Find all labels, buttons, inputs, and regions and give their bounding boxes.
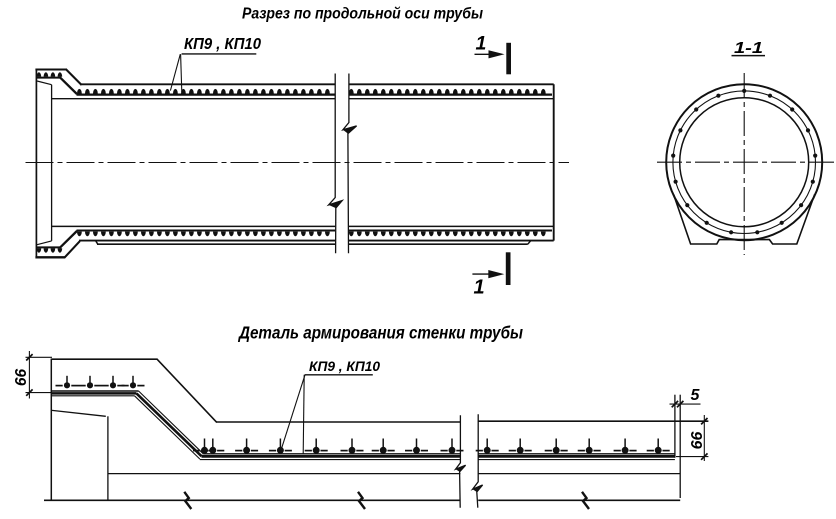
svg-text:КП9 , КП10: КП9 , КП10: [309, 359, 380, 375]
svg-text:Деталь армирования стенки труб: Деталь армирования стенки трубы: [237, 323, 523, 343]
svg-text:66: 66: [689, 432, 706, 450]
svg-text:Разрез по продольной оси трубы: Разрез по продольной оси трубы: [242, 5, 484, 22]
svg-text:1-1: 1-1: [734, 40, 763, 57]
svg-text:1: 1: [476, 32, 487, 54]
svg-text:1: 1: [474, 276, 485, 298]
svg-text:66: 66: [13, 369, 30, 387]
svg-text:КП9 , КП10: КП9 , КП10: [184, 36, 261, 53]
svg-text:5: 5: [691, 387, 701, 404]
